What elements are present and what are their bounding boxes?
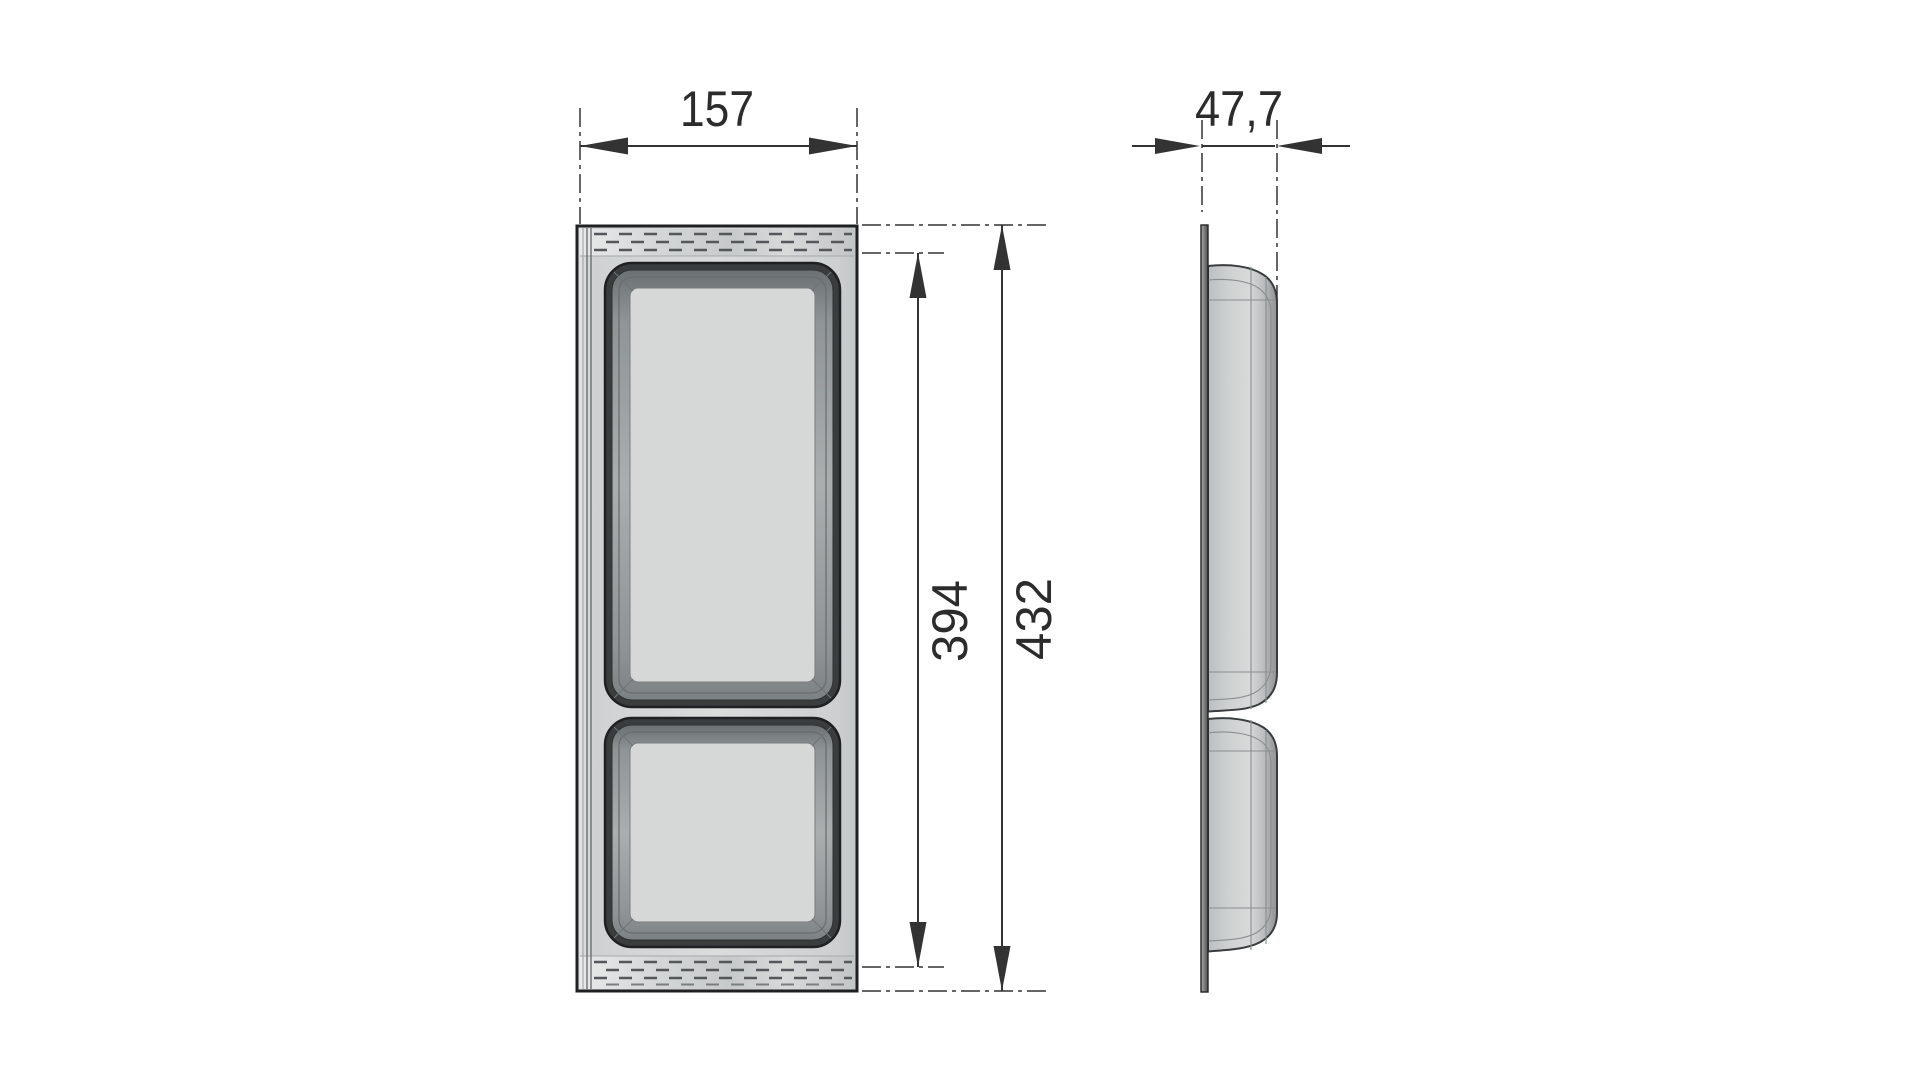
technical-drawing: 157 47,7 394 432	[0, 0, 1922, 1080]
lower-compartment	[605, 718, 840, 947]
dimension-width-label: 157	[680, 81, 754, 137]
arrowhead-left	[1155, 138, 1200, 154]
hatch-strip-bottom	[580, 956, 854, 989]
arrowhead-top	[994, 225, 1011, 270]
dimension-depth-label: 47,7	[1195, 81, 1283, 137]
arrowhead-bottom	[994, 946, 1011, 991]
side-view	[1201, 225, 1277, 992]
back-plate	[1201, 225, 1208, 992]
upper-compartment	[605, 263, 840, 707]
upper-compartment-floor	[630, 288, 815, 682]
arrowhead-top	[910, 253, 927, 298]
dimension-recess-height-label: 394	[922, 580, 978, 662]
hatch-strip-top	[580, 229, 854, 256]
arrowhead-bottom	[910, 922, 927, 967]
upper-tray-bulge	[1208, 265, 1277, 711]
arrowhead-right	[809, 138, 857, 155]
dimension-overall-height-label: 432	[1006, 578, 1062, 660]
front-view	[577, 226, 857, 991]
dimension-width: 157	[580, 81, 857, 224]
arrowhead-left	[580, 138, 628, 155]
lower-tray-bulge	[1208, 718, 1277, 951]
arrowhead-right	[1277, 138, 1322, 154]
drawing-sheet: 157 47,7 394 432	[0, 0, 1922, 1080]
dimension-recess-height: 394	[862, 253, 978, 967]
lower-compartment-floor	[630, 743, 815, 922]
